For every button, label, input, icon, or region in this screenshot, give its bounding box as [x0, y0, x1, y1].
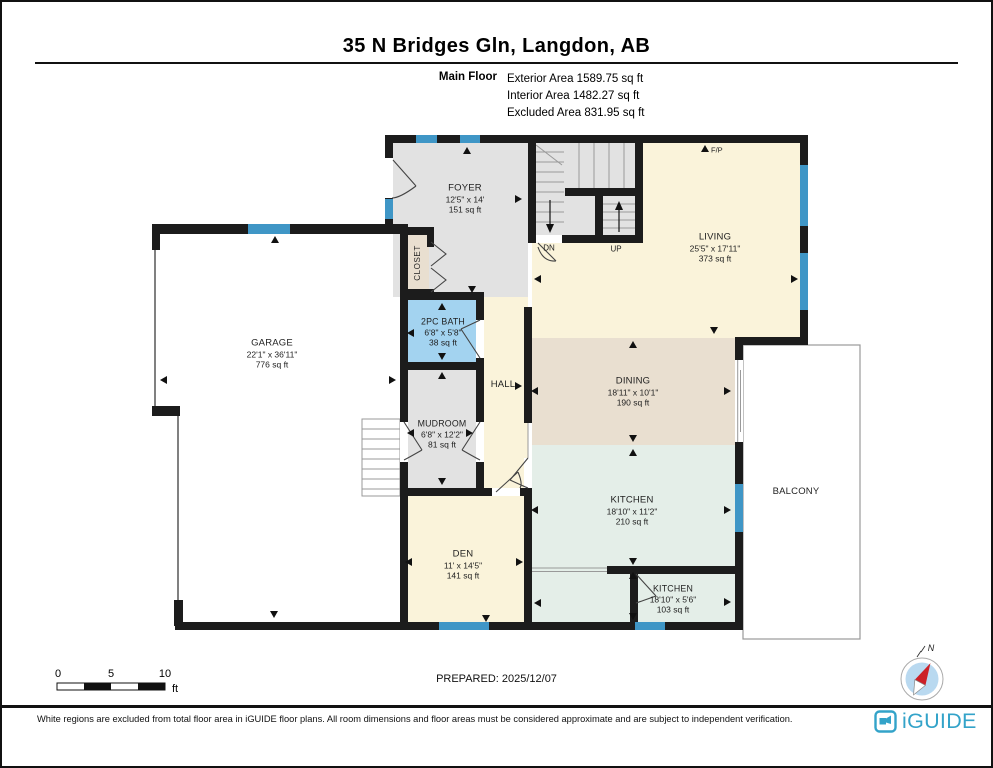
stairs-down-label: DN: [543, 244, 555, 253]
room-label-bath: 2PC BATH 6'8" x 5'8" 38 sq ft: [421, 316, 465, 348]
room-label-garage: GARAGE 22'1" x 36'11" 776 sq ft: [247, 338, 298, 370]
room-label-balcony: BALCONY: [773, 487, 820, 498]
disclaimer-text: White regions are excluded from total fl…: [37, 714, 797, 724]
room-label-kitchen: KITCHEN 18'10" x 11'2" 210 sq ft: [607, 495, 658, 527]
room-label-hall: HALL: [491, 380, 516, 391]
room-label-foyer: FOYER 12'5" x 14' 151 sq ft: [446, 183, 485, 215]
brand-name: iGUIDE: [902, 709, 977, 734]
compass-north-label: N: [928, 643, 935, 653]
iguide-logo-icon: [874, 710, 897, 733]
garage-stairs: [362, 419, 400, 496]
room-label-den: DEN 11' x 14'5" 141 sq ft: [444, 549, 482, 581]
brand-logo: iGUIDE: [874, 709, 977, 734]
room-label-closet: CLOSET: [413, 245, 424, 281]
footer-divider: [2, 705, 991, 708]
room-label-mudroom: MUDROOM 6'8" x 12'2" 81 sq ft: [418, 418, 467, 450]
prepared-date: PREPARED: 2025/12/07: [2, 673, 991, 685]
stairs-up-label: UP: [610, 245, 621, 254]
room-label-living: LIVING 25'5" x 17'11" 373 sq ft: [690, 232, 741, 264]
room-label-dining: DINING 18'11" x 10'1" 190 sq ft: [608, 376, 659, 408]
fireplace-label: F/P: [711, 146, 723, 155]
room-label-kitchen2: KITCHEN 18'10" x 5'6" 103 sq ft: [650, 583, 697, 615]
floorplan-page: 35 N Bridges Gln, Langdon, AB Main Floor…: [0, 0, 993, 768]
